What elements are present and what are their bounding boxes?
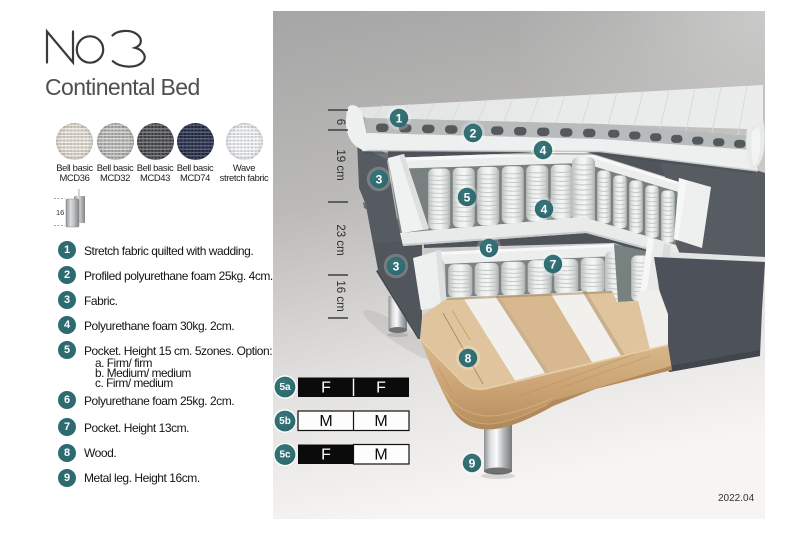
- svg-text:F: F: [321, 379, 331, 396]
- svg-text:M: M: [374, 446, 387, 463]
- svg-text:8: 8: [465, 352, 472, 366]
- svg-text:23 cm: 23 cm: [334, 224, 346, 255]
- svg-text:6: 6: [334, 119, 346, 125]
- svg-text:3: 3: [393, 260, 400, 274]
- svg-text:5b: 5b: [279, 416, 291, 427]
- svg-text:9: 9: [469, 457, 476, 471]
- svg-text:19 cm: 19 cm: [334, 149, 346, 180]
- svg-text:5c: 5c: [279, 450, 291, 461]
- svg-text:4: 4: [540, 144, 547, 158]
- svg-text:2022.04: 2022.04: [718, 493, 755, 504]
- svg-text:5a: 5a: [279, 382, 291, 393]
- svg-text:6: 6: [486, 242, 493, 256]
- svg-text:2: 2: [470, 127, 477, 141]
- svg-text:F: F: [376, 379, 386, 396]
- svg-text:4: 4: [541, 203, 548, 217]
- svg-text:M: M: [374, 413, 387, 430]
- svg-text:3: 3: [376, 173, 383, 187]
- svg-text:M: M: [319, 413, 332, 430]
- svg-text:16 cm: 16 cm: [334, 280, 346, 311]
- svg-text:F: F: [321, 446, 331, 463]
- svg-text:5: 5: [464, 191, 471, 205]
- svg-text:7: 7: [550, 258, 557, 272]
- svg-text:1: 1: [396, 112, 403, 126]
